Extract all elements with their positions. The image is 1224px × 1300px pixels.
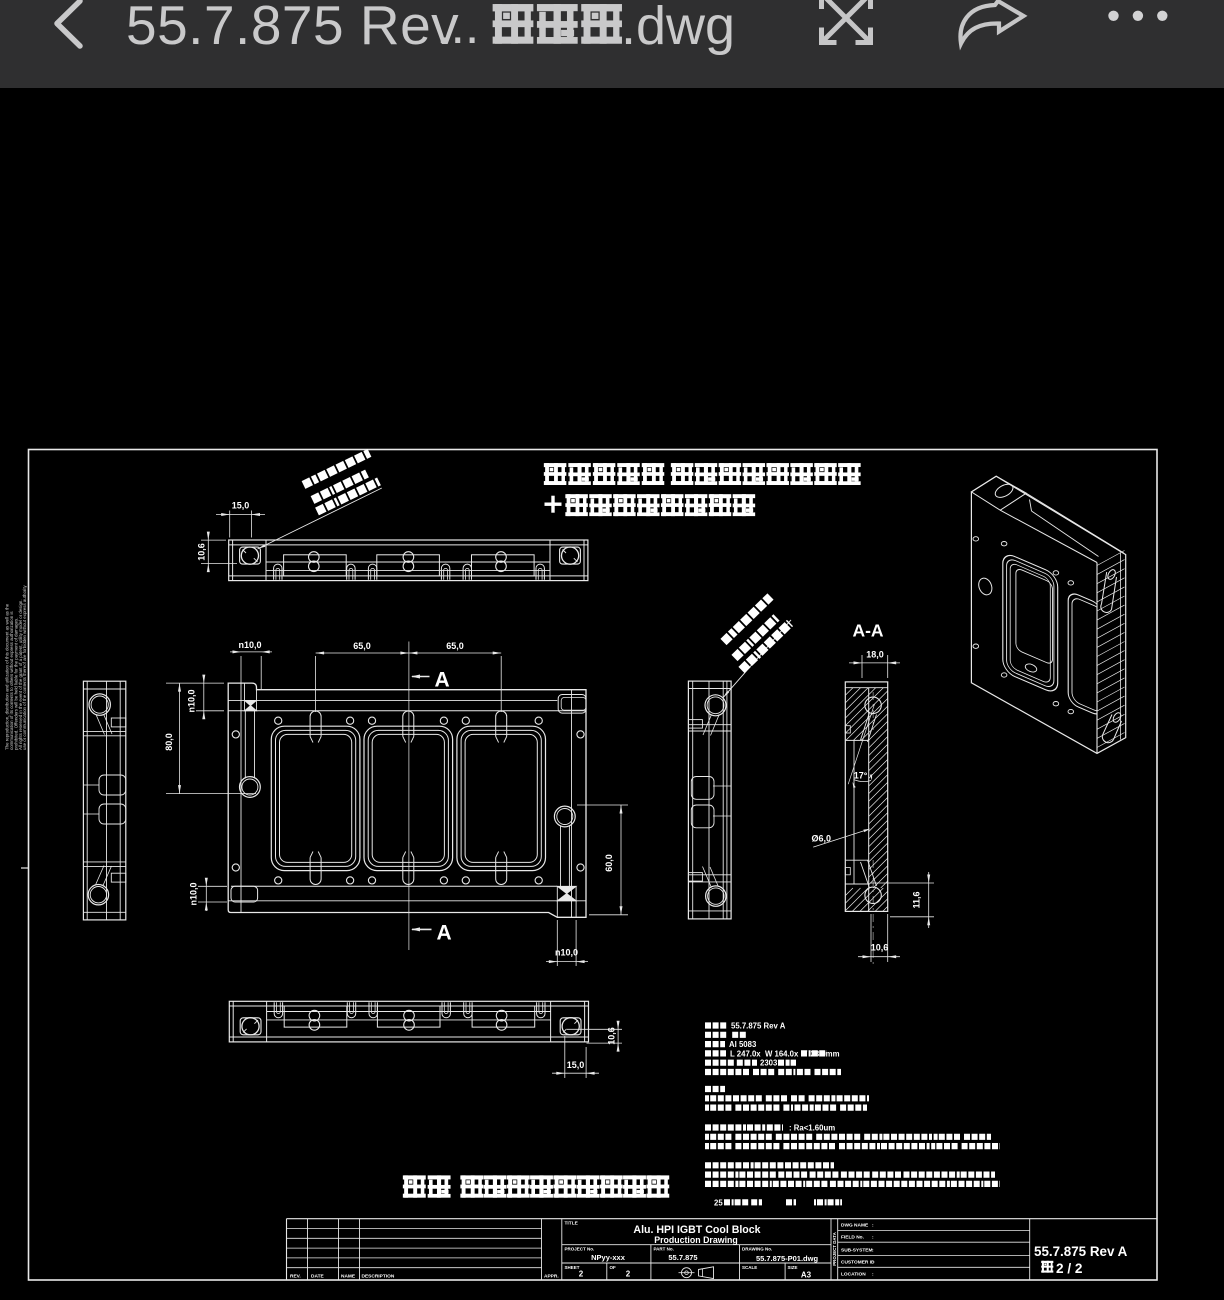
svg-text:n10,0: n10,0 bbox=[187, 689, 197, 712]
svg-text:10,6: 10,6 bbox=[197, 543, 207, 561]
svg-text:2 / 2: 2 / 2 bbox=[1056, 1261, 1083, 1276]
svg-text:10,6: 10,6 bbox=[607, 1027, 617, 1045]
svg-text:80,0: 80,0 bbox=[164, 733, 174, 751]
svg-text:Ø6,0: Ø6,0 bbox=[812, 834, 832, 844]
svg-text:SCALE: SCALE bbox=[742, 1265, 757, 1270]
svg-text:60,0: 60,0 bbox=[604, 854, 614, 872]
svg-text:Al 5083: Al 5083 bbox=[729, 1040, 757, 1049]
svg-text:use or communication of the co: use or communication of the contents the… bbox=[22, 584, 27, 750]
svg-text:10,6: 10,6 bbox=[871, 943, 889, 953]
svg-text:.dwg: .dwg bbox=[621, 0, 735, 56]
svg-text:NPyy-xxx: NPyy-xxx bbox=[591, 1253, 626, 1262]
svg-text:n10,0: n10,0 bbox=[189, 882, 199, 905]
svg-text:REV.: REV. bbox=[290, 1274, 301, 1280]
svg-text:CUSTOMER ID: CUSTOMER ID bbox=[841, 1259, 875, 1265]
svg-text:FIELD No.: FIELD No. bbox=[841, 1234, 864, 1240]
svg-text:17°: 17° bbox=[854, 771, 868, 781]
svg-text:DESCRIPTION: DESCRIPTION bbox=[362, 1274, 395, 1280]
svg-text:DRAWING No.: DRAWING No. bbox=[742, 1247, 772, 1252]
svg-text:SHEET: SHEET bbox=[565, 1265, 580, 1270]
svg-text:SUB-SYSTEM: SUB-SYSTEM bbox=[841, 1248, 872, 1254]
svg-text:A: A bbox=[437, 922, 452, 945]
svg-text:n10,0: n10,0 bbox=[238, 640, 261, 650]
svg-text:PROJECT No.: PROJECT No. bbox=[565, 1247, 595, 1252]
svg-text:SIZE: SIZE bbox=[788, 1265, 798, 1270]
svg-text:LOCATION: LOCATION bbox=[841, 1272, 866, 1278]
svg-text:NAME: NAME bbox=[341, 1274, 356, 1280]
svg-text:: Ra<1.60um: : Ra<1.60um bbox=[789, 1124, 835, 1133]
svg-text:TITLE: TITLE bbox=[565, 1221, 579, 1227]
svg-text:DATE: DATE bbox=[311, 1274, 325, 1280]
svg-text:2: 2 bbox=[579, 1270, 584, 1279]
svg-text:A-A: A-A bbox=[852, 621, 883, 641]
svg-text:15,0: 15,0 bbox=[232, 501, 250, 511]
svg-text:55.7.875: 55.7.875 bbox=[668, 1253, 697, 1262]
svg-text:A: A bbox=[435, 669, 450, 692]
svg-text:55.7.875 Rev A: 55.7.875 Rev A bbox=[1034, 1244, 1128, 1259]
svg-text:OF: OF bbox=[610, 1265, 617, 1270]
svg-text:PROJECT DATA: PROJECT DATA bbox=[832, 1231, 837, 1265]
svg-text:A3: A3 bbox=[801, 1271, 812, 1280]
svg-text:PART No.: PART No. bbox=[654, 1247, 674, 1252]
svg-text:DWG NAME: DWG NAME bbox=[841, 1223, 869, 1229]
svg-text:55.7.875-P01.dwg: 55.7.875-P01.dwg bbox=[756, 1254, 819, 1263]
svg-text:15,0: 15,0 bbox=[567, 1060, 585, 1070]
svg-text:2: 2 bbox=[626, 1270, 631, 1279]
svg-text:65,0: 65,0 bbox=[353, 641, 371, 651]
svg-text:n10,0: n10,0 bbox=[555, 948, 578, 958]
svg-text:18,0: 18,0 bbox=[866, 650, 884, 660]
svg-text:L 247.0x W 164.0x T: L 247.0x W 164.0x T bbox=[730, 1049, 808, 1058]
svg-text:55.7.875 Rev A: 55.7.875 Rev A bbox=[731, 1022, 786, 1031]
svg-text:11,6: 11,6 bbox=[912, 891, 922, 908]
svg-text:APPR.: APPR. bbox=[544, 1274, 559, 1280]
svg-text:23.0mm: 23.0mm bbox=[811, 1049, 840, 1058]
svg-text:65,0: 65,0 bbox=[446, 641, 464, 651]
svg-text:55.7.875 Rev: 55.7.875 Rev bbox=[126, 0, 459, 56]
svg-text:2303: 2303 bbox=[760, 1059, 778, 1068]
svg-text:Production Drawing: Production Drawing bbox=[654, 1235, 738, 1245]
svg-text:...: ... bbox=[436, 0, 479, 55]
svg-text:25: 25 bbox=[714, 1198, 723, 1207]
